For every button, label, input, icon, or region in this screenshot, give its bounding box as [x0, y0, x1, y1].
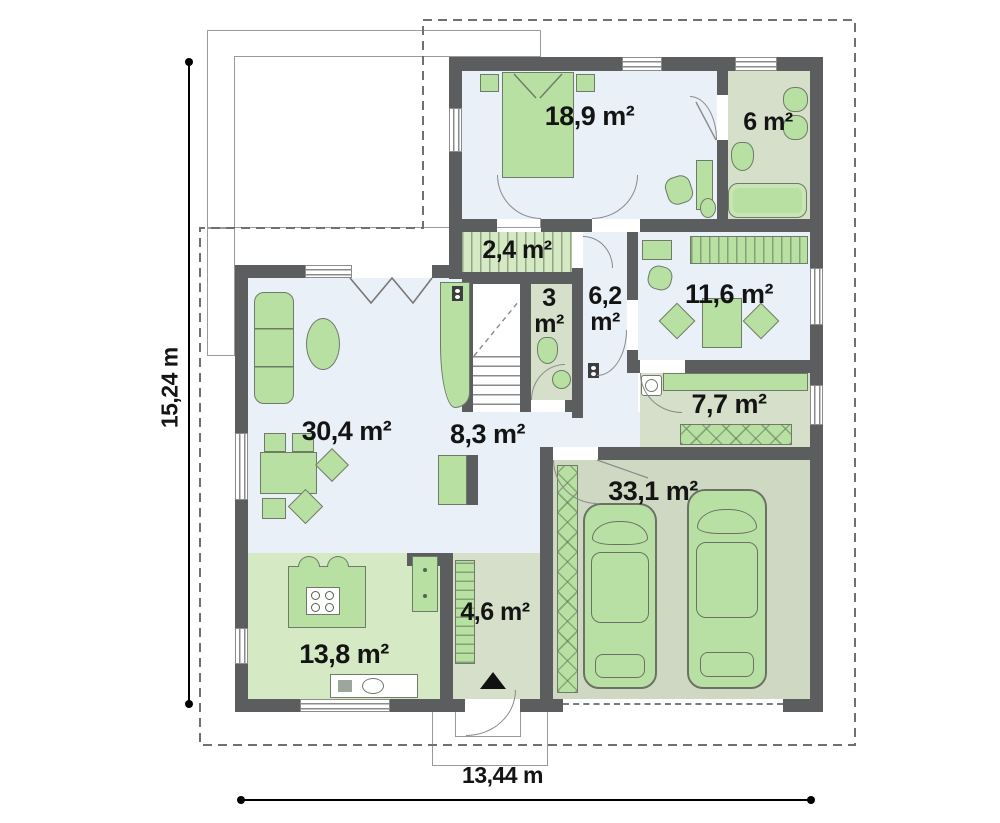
dimension-dot — [185, 58, 193, 66]
dimension-dot — [185, 700, 193, 708]
stair-direction-line-icon — [474, 301, 519, 356]
room-label-entry: 4,6 m² — [440, 600, 550, 626]
room-label-bathroom: 6 m² — [722, 110, 814, 136]
dimension-line-left — [188, 62, 190, 705]
dimension-dot — [807, 796, 815, 804]
room-label-kitchen: 13,8 m² — [248, 641, 440, 669]
room-label-living: 30,4 m² — [248, 418, 445, 446]
double-door-icon — [350, 278, 432, 303]
dimension-label-height: 15,24 m — [158, 328, 181, 448]
room-label-utility: 7,7 m² — [648, 391, 810, 419]
room-label-closet: 2,4 m² — [462, 238, 572, 264]
floor-plan: 18,9 m² 6 m² 2,4 m² 3 m² 6,2 m² 11,6 m² … — [0, 0, 1000, 823]
room-label-hall-upper-line1: 6,2 — [588, 282, 621, 310]
dimension-label-width: 13,44 m — [420, 764, 585, 787]
room-label-wc: 3 m² — [526, 286, 572, 337]
room-label-bedroom: 18,9 m² — [462, 103, 717, 131]
dimension-dot — [237, 796, 245, 804]
room-label-hall-upper-line2: m² — [590, 308, 620, 336]
room-label-garage: 33,1 m² — [553, 478, 753, 506]
room-label-study: 11,6 m² — [648, 281, 810, 309]
room-label-wc-line2: m² — [534, 310, 564, 338]
room-label-wc-line1: 3 — [542, 284, 555, 312]
room-label-hall-upper: 6,2 m² — [578, 284, 632, 335]
dimension-line-bottom — [241, 799, 811, 801]
bed-fold-lines-icon — [514, 74, 562, 98]
room-label-hallway: 8,3 m² — [420, 421, 555, 449]
